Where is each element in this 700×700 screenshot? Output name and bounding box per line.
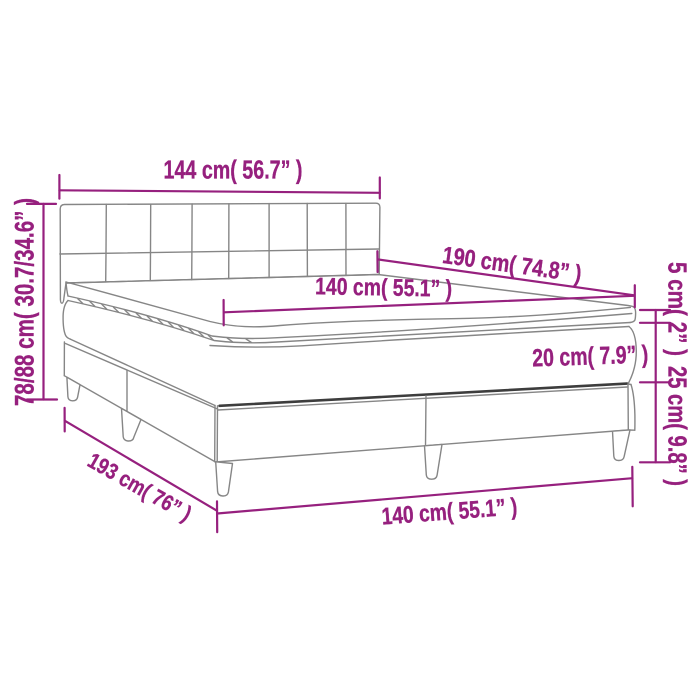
svg-text:20 cm( 7.9” ): 20 cm( 7.9” ) <box>532 340 649 372</box>
svg-text:78/88 cm( 30.7/34.6” ): 78/88 cm( 30.7/34.6” ) <box>10 198 40 406</box>
svg-text:140 cm( 55.1” ): 140 cm( 55.1” ) <box>315 273 452 302</box>
svg-text:25 cm( 9.8” ): 25 cm( 9.8” ) <box>663 366 693 486</box>
svg-text:5 cm( 2” ): 5 cm( 2” ) <box>663 262 693 356</box>
svg-text:144 cm( 56.7” ): 144 cm( 56.7” ) <box>164 154 303 184</box>
